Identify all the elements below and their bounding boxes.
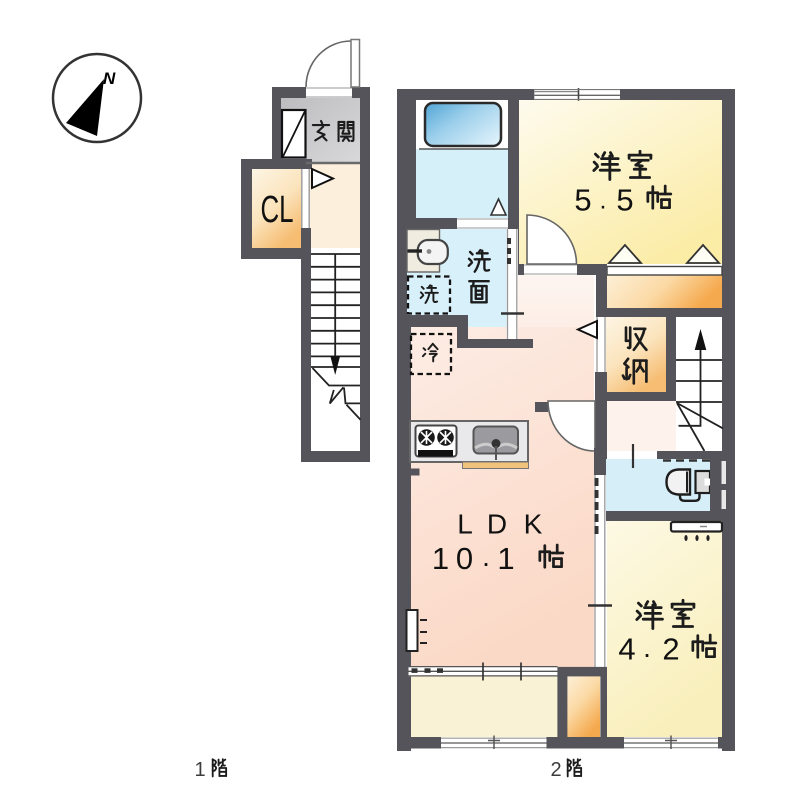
svg-text:.: . [482,541,490,572]
svg-text:L: L [457,509,473,540]
svg-text:5: 5 [616,183,633,218]
svg-text:0: 0 [456,541,473,576]
svg-text:1: 1 [432,541,449,576]
svg-text:N: N [103,69,116,88]
svg-text:.: . [643,632,651,663]
svg-text:K: K [524,509,543,540]
svg-text:4: 4 [618,632,635,667]
svg-text:1: 1 [497,541,514,576]
svg-text:.: . [600,187,607,215]
svg-text:D: D [487,509,507,540]
svg-text:1: 1 [194,759,205,781]
svg-text:5: 5 [574,183,591,218]
svg-text:2: 2 [550,759,561,781]
svg-text:2: 2 [662,632,679,667]
svg-text:CL: CL [260,188,293,230]
